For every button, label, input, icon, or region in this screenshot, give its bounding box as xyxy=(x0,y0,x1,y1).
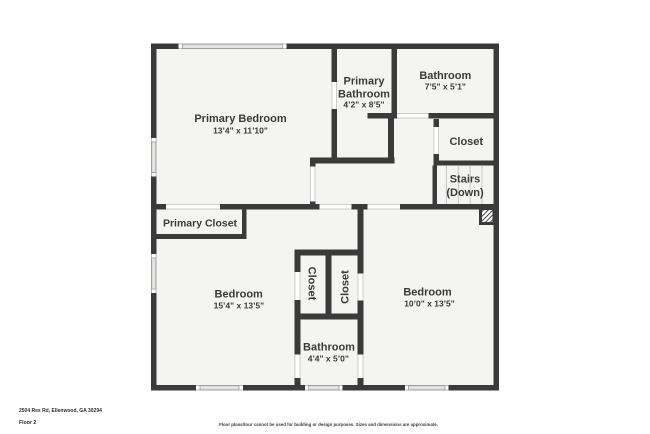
svg-text:10’0" x 13’5": 10’0" x 13’5" xyxy=(404,299,455,309)
svg-text:Floor plans/tour cannot be use: Floor plans/tour cannot be used for buil… xyxy=(219,422,438,427)
svg-text:Closet: Closet xyxy=(340,270,352,304)
svg-text:7’5" x 5’1": 7’5" x 5’1" xyxy=(425,82,466,92)
svg-text:Closet: Closet xyxy=(306,267,318,301)
svg-text:Bedroom: Bedroom xyxy=(215,289,264,301)
svg-text:Primary Closet: Primary Closet xyxy=(163,217,238,229)
svg-text:Closet: Closet xyxy=(449,136,483,148)
svg-text:Bedroom: Bedroom xyxy=(403,287,452,299)
svg-text:13’4" x 11’10": 13’4" x 11’10" xyxy=(213,126,268,136)
svg-text:Floor 2: Floor 2 xyxy=(19,420,36,426)
svg-text:2504 Rex Rd, Ellenwood, GA 302: 2504 Rex Rd, Ellenwood, GA 30294 xyxy=(19,408,102,414)
svg-text:(Down): (Down) xyxy=(446,187,484,199)
svg-text:Stairs: Stairs xyxy=(450,174,481,186)
svg-text:4’4" x 5’0": 4’4" x 5’0" xyxy=(308,354,349,364)
svg-text:Bathroom: Bathroom xyxy=(419,70,471,82)
svg-text:Bathroom: Bathroom xyxy=(303,342,355,354)
svg-text:Primary Bedroom: Primary Bedroom xyxy=(194,113,287,125)
svg-text:15’4" x 13’5": 15’4" x 13’5" xyxy=(214,301,265,311)
svg-text:4’2" x 8’5": 4’2" x 8’5" xyxy=(343,100,384,110)
svg-text:Primary: Primary xyxy=(344,76,386,88)
